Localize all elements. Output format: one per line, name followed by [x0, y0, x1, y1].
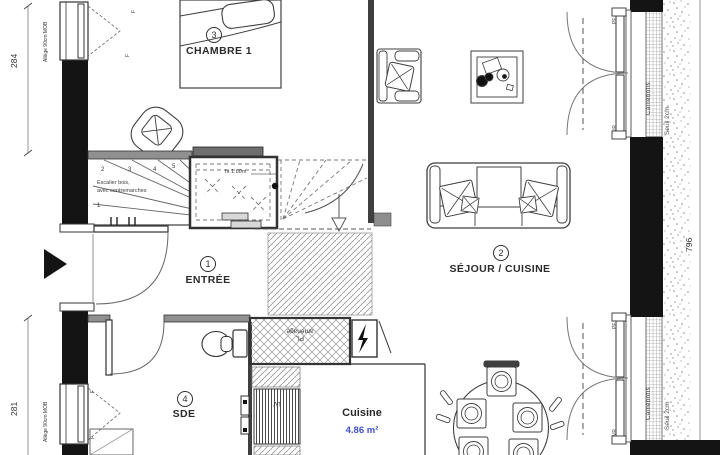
partition-wall	[368, 0, 374, 223]
stair-direction-arc	[305, 164, 363, 213]
tread-2: 2	[101, 167, 104, 174]
entree-door-leaf	[94, 226, 168, 232]
kitchen-area: 4.86 m²	[322, 426, 402, 436]
tread-3: 3	[128, 167, 131, 174]
side-table	[471, 51, 523, 103]
plan-linework	[0, 0, 720, 455]
panel-door-line	[379, 321, 391, 353]
window-f-1: F	[132, 5, 138, 13]
kitchen-label: Cuisine	[322, 407, 402, 419]
tread-1: 1	[97, 203, 100, 210]
room-number-sejour: 2	[493, 245, 509, 261]
window-f-2: F	[126, 49, 132, 57]
dimension-left-top: 284	[10, 26, 19, 68]
toilet	[202, 330, 247, 357]
room-label-entree: ENTRÉE	[168, 275, 248, 287]
stair-shelf	[193, 147, 263, 156]
stair-note-2: avec contremarches	[97, 188, 147, 194]
dimension-line-left-bottom	[24, 315, 32, 455]
window-bottom-left	[60, 384, 88, 444]
dishwasher-label: LV	[266, 400, 288, 407]
room-number-entree: 1	[200, 256, 216, 272]
dimension-left-bottom: 281	[10, 374, 19, 416]
pf-label-top: PF	[613, 12, 619, 24]
sofa	[427, 163, 570, 228]
door-jamb-top	[60, 224, 94, 232]
casement-swing-top	[88, 6, 120, 56]
dimension-line-left-top	[24, 3, 32, 156]
sde-door-leaf	[106, 320, 112, 375]
vr-label-top: VR	[613, 120, 619, 132]
counter-hatch-top	[252, 367, 300, 387]
winder-dashes	[278, 160, 367, 220]
threshold-label-top: Seuil 2cm	[664, 53, 671, 135]
chambre-south-wall	[88, 151, 192, 159]
tread-5: 5	[172, 164, 175, 171]
understair-zone	[268, 233, 372, 315]
door-knob-dot	[272, 183, 278, 189]
dimension-right: 796	[685, 210, 694, 252]
counter-hatch-bottom	[254, 446, 300, 455]
headroom-label: ht 1.80m	[225, 169, 246, 175]
closet-label: PL aménagé	[262, 327, 338, 341]
sill-label-bottom: Allège 90cm MOB	[44, 384, 50, 442]
room-label-sde: SDE	[144, 409, 224, 421]
stair-newel-1	[222, 213, 248, 220]
french-door-top	[567, 8, 631, 139]
stair-note-1: Escalier bois,	[97, 180, 130, 186]
threshold-label-bottom: Seuil 2cm	[664, 348, 671, 430]
sde-wall-right	[164, 315, 250, 322]
dishwasher-unit	[254, 389, 300, 444]
vr-label-bottom: VR	[613, 424, 619, 436]
entry-arrow	[44, 249, 67, 279]
room-label-chambre: CHAMBRE 1	[169, 46, 269, 58]
floor-plan: 3 CHAMBRE 1 2 SÉJOUR / CUISINE 1 ENTRÉE …	[0, 0, 720, 455]
door-jamb-bottom	[60, 303, 94, 311]
room-number-sde: 4	[177, 391, 193, 407]
window-top-left	[60, 2, 88, 60]
bed	[180, 0, 281, 88]
armchair	[377, 49, 421, 103]
sde-door-swing	[110, 322, 164, 374]
wall-niche-1	[241, 396, 249, 415]
stair-newel-2	[231, 221, 261, 228]
decking-label-top: Caillebotis	[646, 33, 661, 115]
window-f-4: F	[91, 431, 97, 439]
french-door-bottom	[567, 313, 631, 444]
sill-label-top: Allège 90cm MOB	[44, 4, 50, 62]
tread-4: 4	[153, 167, 156, 174]
window-f-3: F	[91, 385, 97, 393]
entree-door-swing	[96, 232, 168, 304]
room-label-sejour: SÉJOUR / CUISINE	[440, 264, 560, 276]
room-number-chambre: 3	[206, 27, 222, 43]
pf-label-bottom: PF	[613, 317, 619, 329]
wall-stub	[374, 213, 391, 226]
decking-label-bottom: Caillebotis	[646, 338, 661, 420]
